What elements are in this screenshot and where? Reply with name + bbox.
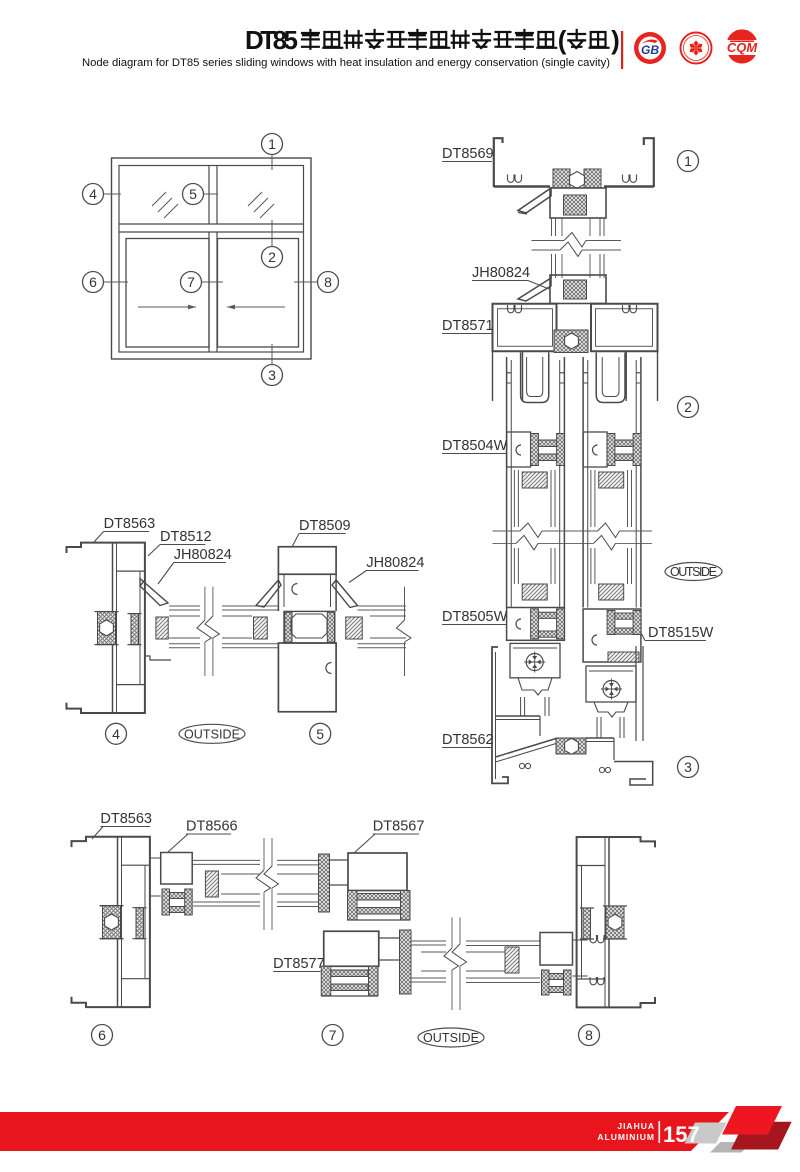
svg-text:OUTSIDE: OUTSIDE bbox=[184, 727, 240, 741]
svg-text:ALUMINIUM: ALUMINIUM bbox=[597, 1132, 655, 1142]
svg-text:DT8515W: DT8515W bbox=[648, 625, 714, 641]
svg-text:JH80824: JH80824 bbox=[174, 547, 232, 563]
svg-text:JIAHUA: JIAHUA bbox=[617, 1121, 655, 1131]
svg-text:3: 3 bbox=[268, 367, 276, 383]
svg-text:7: 7 bbox=[187, 274, 195, 290]
svg-text:4: 4 bbox=[89, 186, 97, 202]
svg-text:CQM: CQM bbox=[727, 40, 759, 55]
svg-text:1: 1 bbox=[268, 136, 276, 152]
svg-text:157: 157 bbox=[663, 1122, 700, 1147]
svg-text:3: 3 bbox=[684, 759, 692, 775]
svg-text:2: 2 bbox=[268, 249, 276, 265]
svg-text:1: 1 bbox=[684, 153, 692, 169]
svg-text:Node diagram for DT85 series s: Node diagram for DT85 series sliding win… bbox=[82, 57, 610, 69]
svg-text:JH80824: JH80824 bbox=[472, 265, 530, 281]
svg-text:DT8563: DT8563 bbox=[104, 516, 156, 532]
svg-text:DT8569: DT8569 bbox=[442, 146, 494, 162]
svg-text:DT85: DT85 bbox=[245, 25, 298, 55]
svg-text:DT8505W: DT8505W bbox=[442, 609, 508, 625]
svg-text:DT8562: DT8562 bbox=[442, 732, 494, 748]
svg-text:DT8563: DT8563 bbox=[100, 811, 152, 827]
svg-text:6: 6 bbox=[98, 1027, 106, 1043]
svg-text:7: 7 bbox=[329, 1027, 337, 1043]
svg-text:DT8577: DT8577 bbox=[273, 956, 325, 972]
svg-text:DT8566: DT8566 bbox=[186, 819, 238, 835]
svg-text:DT8504W: DT8504W bbox=[442, 438, 508, 454]
svg-text:OUTSIDE: OUTSIDE bbox=[423, 1031, 479, 1045]
svg-text:): ) bbox=[611, 25, 620, 55]
svg-text:8: 8 bbox=[324, 274, 332, 290]
svg-text:4: 4 bbox=[112, 726, 120, 742]
svg-text:DT8512: DT8512 bbox=[160, 529, 212, 545]
svg-text:(: ( bbox=[558, 25, 567, 55]
svg-text:DT8567: DT8567 bbox=[373, 819, 425, 835]
svg-text:JH80824: JH80824 bbox=[366, 555, 424, 571]
svg-text:5: 5 bbox=[189, 186, 197, 202]
svg-text:8: 8 bbox=[585, 1027, 593, 1043]
svg-text:GB: GB bbox=[641, 43, 659, 57]
svg-text:OUTSIDE: OUTSIDE bbox=[670, 565, 717, 579]
svg-text:2: 2 bbox=[684, 399, 692, 415]
svg-text:6: 6 bbox=[89, 274, 97, 290]
svg-text:DT8571: DT8571 bbox=[442, 318, 494, 334]
svg-text:DT8509: DT8509 bbox=[299, 518, 351, 534]
svg-text:5: 5 bbox=[316, 726, 324, 742]
